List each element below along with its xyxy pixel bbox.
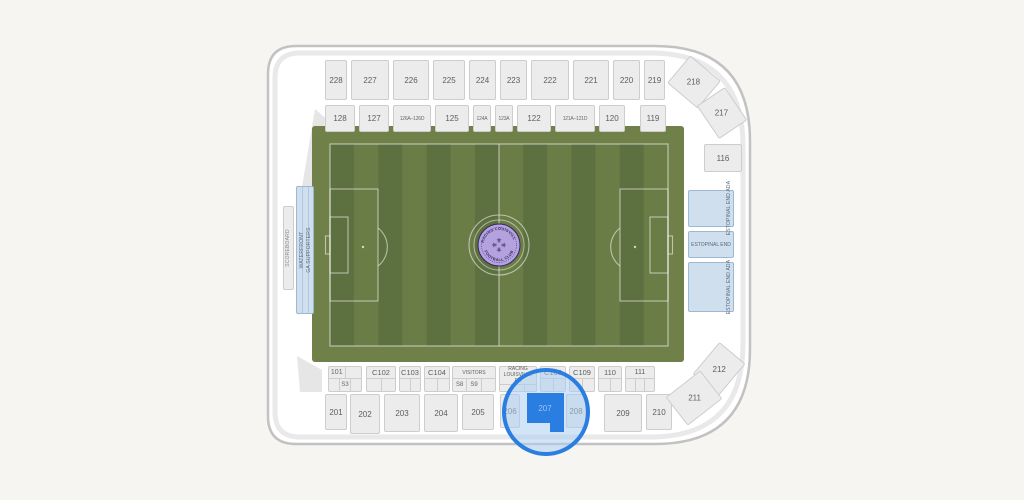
section-225[interactable]: 225 xyxy=(433,60,465,100)
svg-text:⚜: ⚜ xyxy=(491,242,499,248)
section-label: 202 xyxy=(358,410,371,419)
section-220[interactable]: 220 xyxy=(613,60,640,100)
section-label: 116 xyxy=(717,154,730,163)
section-label: 222 xyxy=(543,76,556,85)
stadium-seat-map: RACING LOUISVILLE FOOTBALL CLUB ⚜ ⚜ ⚜ ⚜ … xyxy=(0,0,1024,500)
section-208[interactable]: 208 xyxy=(566,394,586,428)
section-122[interactable]: 122 xyxy=(517,105,551,132)
section-223[interactable]: 223 xyxy=(500,60,527,100)
estopinal-ada-top-label: ESTOPINAL END ADA xyxy=(726,181,732,236)
section-101[interactable]: 101 S3 xyxy=(328,366,362,392)
section-label: 125 xyxy=(445,114,458,123)
section-226[interactable]: 226 xyxy=(393,60,429,100)
section-201[interactable]: 201 xyxy=(325,394,347,430)
row-label-s3: S3 xyxy=(339,378,350,391)
section-label: 226 xyxy=(404,76,417,85)
section-228[interactable]: 228 xyxy=(325,60,347,100)
section-116[interactable]: 116 xyxy=(704,144,742,172)
section-110[interactable]: 110 xyxy=(598,366,622,392)
section-label: 223 xyxy=(507,76,520,85)
section-label: 227 xyxy=(363,76,376,85)
section-label: 211 xyxy=(688,394,701,403)
section-121A-121D[interactable]: 121A–121D xyxy=(555,105,595,132)
section-203[interactable]: 203 xyxy=(384,394,420,432)
section-label: VISITORS xyxy=(453,367,495,378)
estopinal-ada-bottom-label: ESTOPINAL END ADA xyxy=(726,260,732,315)
section-label: 119 xyxy=(647,114,660,123)
waterfront-label-line1: WATERFRONT xyxy=(299,232,305,269)
row-label-s9: S9 xyxy=(466,378,480,391)
section-C104[interactable]: C104 xyxy=(424,366,450,392)
section-label: 101 xyxy=(329,367,345,378)
section-125[interactable]: 125 xyxy=(435,105,469,132)
row-label-s8: S8 xyxy=(453,378,466,391)
section-119[interactable]: 119 xyxy=(640,105,666,132)
section-label: ESTOPINAL END xyxy=(691,242,731,248)
section-222[interactable]: 222 xyxy=(531,60,569,100)
section-label: 120 xyxy=(605,114,618,123)
section-label: 204 xyxy=(434,409,447,418)
section-label: 225 xyxy=(442,76,455,85)
section-label: 212 xyxy=(712,365,725,374)
section-label: 124A xyxy=(477,116,488,122)
section-209[interactable]: 209 xyxy=(604,394,642,432)
scoreboard-label: SCOREBOARD xyxy=(285,229,291,267)
section-label: 209 xyxy=(616,409,629,418)
section-label: C109 xyxy=(570,367,594,378)
section-label: 127 xyxy=(367,114,380,123)
section-label: 228 xyxy=(329,76,342,85)
section-204[interactable]: 204 xyxy=(424,394,458,432)
section-label: 210 xyxy=(652,408,665,417)
section-126A-126D[interactable]: 126A–126D xyxy=(393,105,431,132)
section-label: 201 xyxy=(329,408,342,417)
section-128[interactable]: 128 xyxy=(325,105,355,132)
section-127[interactable]: 127 xyxy=(359,105,389,132)
section-C103[interactable]: C103 xyxy=(399,366,421,392)
section-label: 217 xyxy=(715,108,728,117)
section-219[interactable]: 219 xyxy=(644,60,665,100)
section-label: 110 xyxy=(599,367,621,378)
section-label: 220 xyxy=(620,76,633,85)
section-label: 203 xyxy=(395,409,408,418)
section-label: 208 xyxy=(569,407,582,416)
section-120[interactable]: 120 xyxy=(599,105,625,132)
section-label: 218 xyxy=(687,77,700,86)
section-label: C104 xyxy=(425,367,449,378)
waterfront-label-line2: GA SUPPORTERS xyxy=(306,227,312,272)
section-124A[interactable]: 124A xyxy=(473,105,491,132)
section-227[interactable]: 227 xyxy=(351,60,389,100)
section-123A[interactable]: 123A xyxy=(495,105,513,132)
section-224[interactable]: 224 xyxy=(469,60,496,100)
svg-text:⚜: ⚜ xyxy=(499,242,507,248)
section-label: 221 xyxy=(584,76,597,85)
section-label: C103 xyxy=(400,367,420,378)
section-label: 128 xyxy=(333,114,346,123)
section-C102[interactable]: C102 xyxy=(366,366,396,392)
section-label: 111 xyxy=(626,367,654,378)
section-label: 123A xyxy=(499,116,510,122)
section-205[interactable]: 205 xyxy=(462,394,494,430)
section-label: 219 xyxy=(648,76,661,85)
section-label: C102 xyxy=(367,367,395,378)
section-visitors-bench[interactable]: VISITORS S8 S9 xyxy=(452,366,496,392)
section-label: 121A–121D xyxy=(563,116,588,122)
section-label: 205 xyxy=(471,408,484,417)
section-221[interactable]: 221 xyxy=(573,60,609,100)
section-label: 224 xyxy=(476,76,489,85)
section-202[interactable]: 202 xyxy=(350,394,380,434)
section-label: 122 xyxy=(527,114,540,123)
section-label: 126A–126D xyxy=(400,116,425,122)
section-111[interactable]: 111 xyxy=(625,366,655,392)
